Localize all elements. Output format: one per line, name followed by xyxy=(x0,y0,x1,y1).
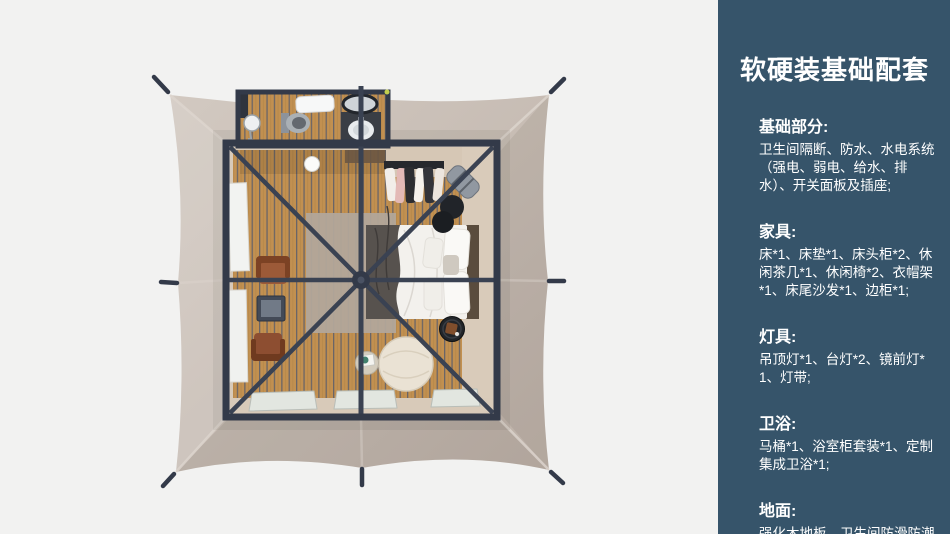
entry-mat xyxy=(345,150,385,163)
pillow xyxy=(424,278,442,310)
bathroom-unit xyxy=(238,92,388,146)
section-lighting: 灯具: 吊顶灯*1、台灯*2、镜前灯*1、灯带; xyxy=(759,323,936,387)
left-window-upper xyxy=(227,183,249,272)
spec-sidebar: 软硬装基础配套 基础部分: 卫生间隔断、防水、水电系统（强电、弱电、给水、排水）… xyxy=(718,0,950,534)
section-furniture: 家具: 床*1、床垫*1、床头柜*2、休闲茶几*1、休闲椅*2、衣帽架*1、床尾… xyxy=(759,218,936,300)
hat-2 xyxy=(432,211,454,233)
small-cushion xyxy=(443,255,459,275)
sidebar-title: 软硬装基础配套 xyxy=(740,50,936,87)
section-flooring-title: 地面: xyxy=(759,497,936,521)
stake-top-left xyxy=(154,77,168,92)
section-lighting-title: 灯具: xyxy=(759,323,936,347)
ceiling-light xyxy=(305,157,320,172)
armchair-2 xyxy=(251,333,285,361)
shower-head xyxy=(244,115,260,131)
slide: 软硬装基础配套 基础部分: 卫生间隔断、防水、水电系统（强电、弱电、给水、排水）… xyxy=(0,0,950,534)
clothes-rack xyxy=(384,161,445,203)
coffee-table xyxy=(257,296,285,321)
left-window-lower xyxy=(228,290,248,382)
section-flooring-body: 强化木地板、卫生间防滑防潮石塑板; xyxy=(759,525,936,534)
accent-dot xyxy=(385,90,390,95)
toilet xyxy=(281,113,310,133)
stake-bottom-left xyxy=(163,474,174,486)
section-furniture-body: 床*1、床垫*1、床头柜*2、休闲茶几*1、休闲椅*2、衣帽架*1、床尾沙发*1… xyxy=(759,246,936,300)
section-basics-title: 基础部分: xyxy=(759,113,936,137)
rack-bar xyxy=(384,161,444,169)
tent-render xyxy=(0,0,718,534)
section-basics-body: 卫生间隔断、防水、水电系统（强电、弱电、给水、排水）、开关面板及插座; xyxy=(759,141,936,195)
section-lighting-body: 吊顶灯*1、台灯*2、镜前灯*1、灯带; xyxy=(759,351,936,387)
stake-bottom-right xyxy=(551,472,563,483)
section-bathroom-body: 马桶*1、浴室柜套装*1、定制集成卫浴*1; xyxy=(759,438,936,474)
stake-mid-left xyxy=(161,282,177,283)
low-window-1 xyxy=(249,391,317,411)
low-window-2 xyxy=(334,390,397,409)
center-hub-cap xyxy=(358,277,365,284)
section-bathroom-title: 卫浴: xyxy=(759,410,936,434)
skylight xyxy=(296,95,335,113)
pillow xyxy=(422,237,444,269)
section-furniture-title: 家具: xyxy=(759,218,936,242)
stake-top-right xyxy=(551,79,564,92)
tent-illustration xyxy=(0,0,718,534)
section-bathroom: 卫浴: 马桶*1、浴室柜套装*1、定制集成卫浴*1; xyxy=(759,410,936,474)
section-flooring: 地面: 强化木地板、卫生间防滑防潮石塑板; xyxy=(759,497,936,534)
section-basics: 基础部分: 卫生间隔断、防水、水电系统（强电、弱电、给水、排水）、开关面板及插座… xyxy=(759,113,936,195)
tray-table xyxy=(440,317,465,342)
